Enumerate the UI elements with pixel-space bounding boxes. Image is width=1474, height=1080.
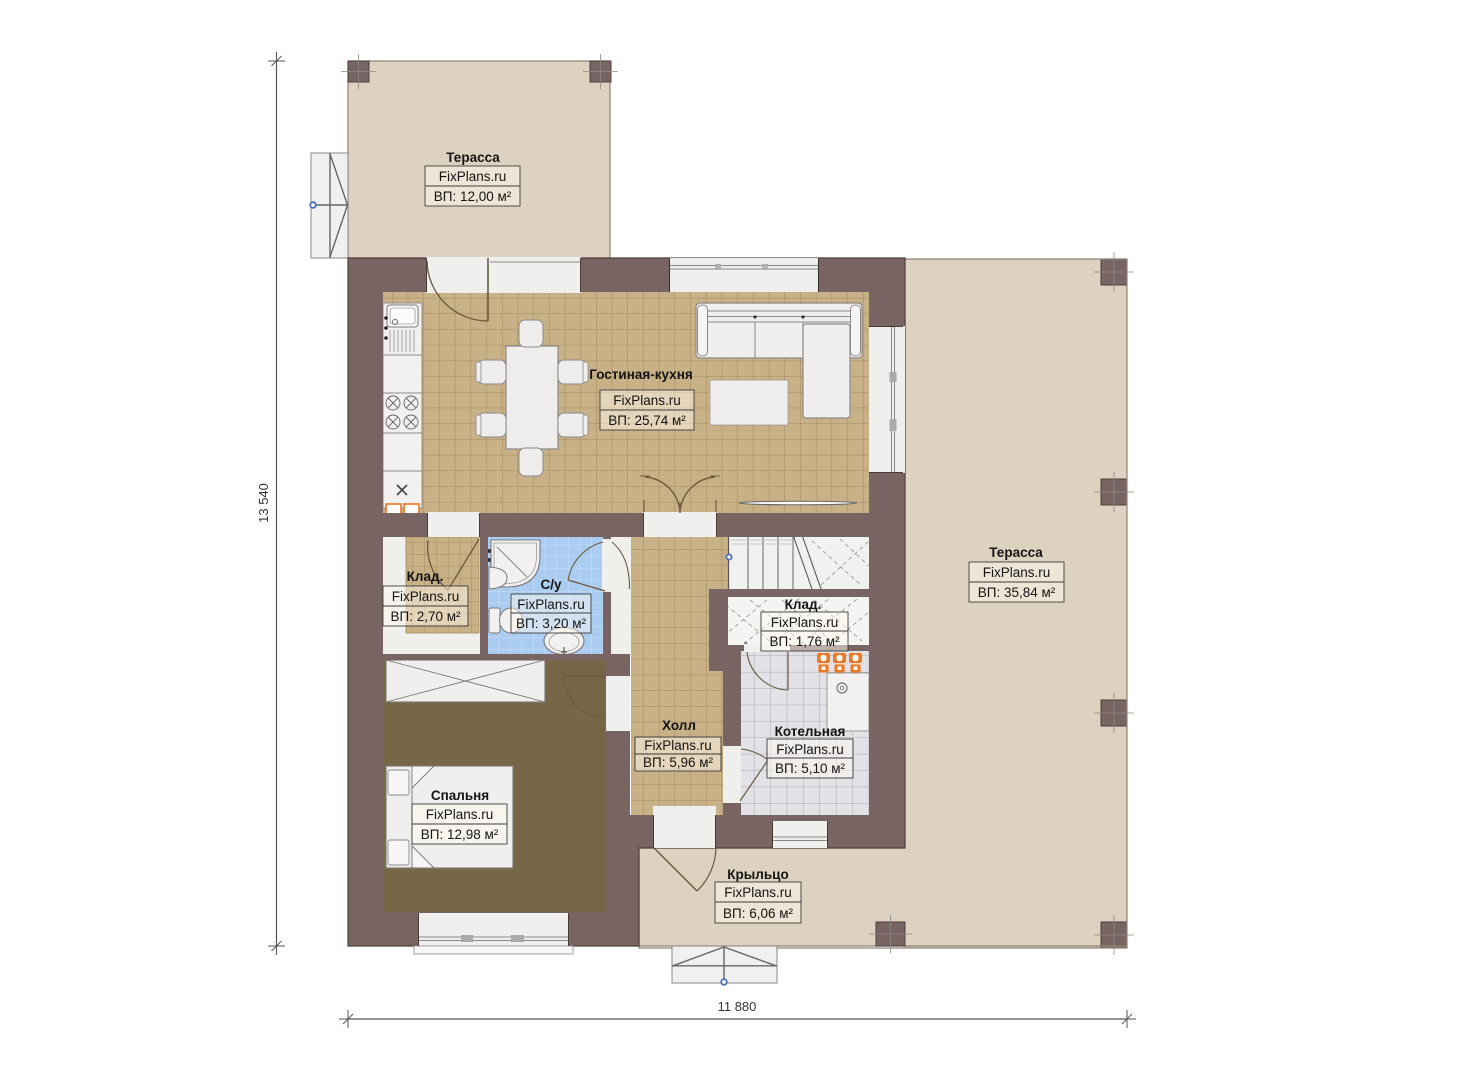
svg-text:Клад.: Клад.	[407, 569, 444, 584]
svg-text:FixPlans.ru: FixPlans.ru	[439, 169, 507, 184]
svg-text:FixPlans.ru: FixPlans.ru	[724, 885, 792, 900]
svg-text:ВП: 3,20 м²: ВП: 3,20 м²	[516, 616, 587, 631]
svg-text:FixPlans.ru: FixPlans.ru	[517, 597, 585, 612]
svg-text:Холл: Холл	[662, 718, 696, 733]
svg-text:ВП: 2,70 м²: ВП: 2,70 м²	[390, 609, 461, 624]
svg-text:FixPlans.ru: FixPlans.ru	[776, 742, 844, 757]
svg-text:11 880: 11 880	[718, 999, 757, 1014]
svg-text:FixPlans.ru: FixPlans.ru	[392, 589, 460, 604]
svg-text:Котельная: Котельная	[775, 724, 846, 739]
svg-text:Терасса: Терасса	[989, 545, 1043, 560]
svg-text:ВП: 25,74 м²: ВП: 25,74 м²	[608, 413, 686, 428]
svg-text:Крыльцо: Крыльцо	[727, 867, 788, 882]
svg-text:Спальня: Спальня	[431, 788, 489, 803]
svg-text:Терасса: Терасса	[446, 150, 500, 165]
svg-text:ВП: 12,00 м²: ВП: 12,00 м²	[434, 189, 512, 204]
svg-text:13 540: 13 540	[256, 483, 271, 523]
svg-text:Клад.: Клад.	[785, 597, 822, 612]
svg-text:FixPlans.ru: FixPlans.ru	[613, 393, 681, 408]
svg-text:FixPlans.ru: FixPlans.ru	[426, 807, 494, 822]
svg-text:Гостиная-кухня: Гостиная-кухня	[589, 367, 692, 382]
svg-text:ВП: 1,76 м²: ВП: 1,76 м²	[769, 634, 840, 649]
svg-text:ВП: 12,98 м²: ВП: 12,98 м²	[421, 827, 499, 842]
svg-text:ВП: 35,84 м²: ВП: 35,84 м²	[978, 585, 1056, 600]
svg-text:FixPlans.ru: FixPlans.ru	[644, 738, 712, 753]
svg-text:FixPlans.ru: FixPlans.ru	[771, 615, 839, 630]
svg-text:С/у: С/у	[540, 577, 562, 592]
svg-text:FixPlans.ru: FixPlans.ru	[983, 565, 1051, 580]
svg-text:ВП: 6,06 м²: ВП: 6,06 м²	[723, 906, 794, 921]
svg-text:ВП: 5,10 м²: ВП: 5,10 м²	[775, 761, 846, 776]
svg-text:ВП: 5,96 м²: ВП: 5,96 м²	[643, 755, 714, 770]
